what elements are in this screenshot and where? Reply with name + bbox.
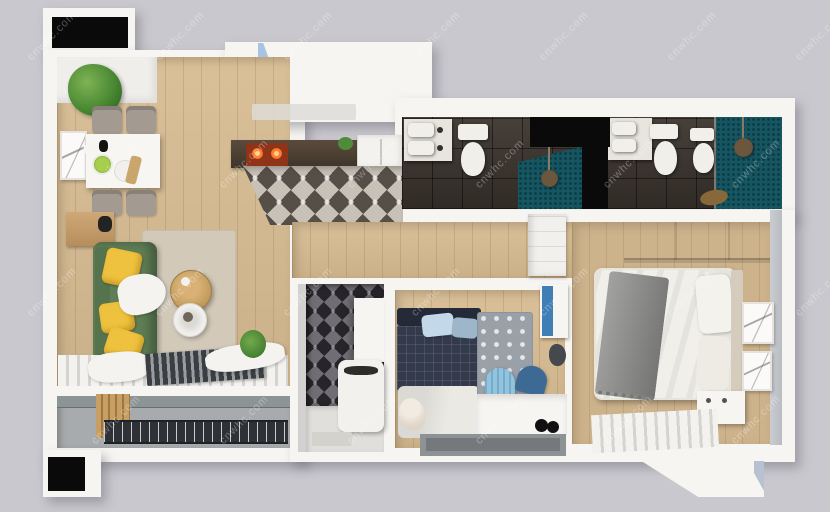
dining-wall-art [60,131,87,180]
vanity-sink [612,139,636,152]
vanity-sink [408,141,434,155]
wardrobe-sliding-doors [624,222,782,260]
black-glazing-column [582,117,608,209]
rain-shower-head [734,138,753,157]
bed-pillow [695,335,732,391]
side-table-bowl [183,312,193,322]
faucet [437,145,443,151]
kids-pillow [421,312,455,337]
wc-floor-mat [312,432,352,446]
wc-wall-cabinet [354,298,384,362]
bed-pillow [695,274,735,335]
bidet-bowl [693,143,714,173]
wardrobe-shadow [624,258,782,263]
watermark-text: cnwhc.com [665,9,719,63]
headphones [547,421,559,433]
wc-fixture-lid [344,366,378,375]
hanging-bag [549,344,566,366]
tray-items [181,277,190,286]
hall-dresser [528,214,566,276]
window-top-left [52,17,128,48]
kids-cabinet-blue-panel [542,286,553,336]
balcony-drying-grate [104,420,288,444]
kitchen-plant [338,137,353,150]
window-bottom-left [48,457,85,491]
kids-pillow [451,317,479,339]
balcony-wall-band [57,396,290,408]
entry-step-wedge [640,456,764,497]
toilet-tank [458,124,488,140]
wc-left-wall-face [298,284,306,452]
kids-desktop-inset [426,438,560,451]
shower-arm [548,146,550,172]
watermark-text: cnwhc.com [793,9,830,63]
floor-plant [240,330,266,358]
toilet-tank [650,124,678,139]
bidet-tank [690,128,714,141]
bedroom-wall-art [742,302,774,344]
stove-burner [252,148,263,159]
vanity-sink [612,122,636,135]
fridge-handle [380,139,382,165]
black-bag [98,216,112,232]
wine-bottle [99,140,108,152]
toilet-bowl [461,142,485,176]
bedroom-wall-art [742,351,772,391]
stove-burner [271,148,282,159]
toilet-bowl [654,141,677,175]
vanity-sink [408,123,434,137]
rain-shower-head [541,170,558,187]
range-hood [252,104,356,120]
salad-plate [92,154,113,175]
kitchen-tile-floor [243,166,403,225]
floor-plan-render: cnwhc.comcnwhc.comcnwhc.comcnwhc.comcnwh… [0,0,830,512]
bedroom-radiator [591,409,719,454]
faucet [437,127,443,133]
nightstand-knob [706,398,711,403]
watermark-text: cnwhc.com [793,265,830,319]
watermark-text: cnwhc.com [537,9,591,63]
dining-chair [92,106,122,134]
nightstand-knob [722,398,727,403]
dining-chair [126,106,156,134]
dining-chair [126,190,156,216]
